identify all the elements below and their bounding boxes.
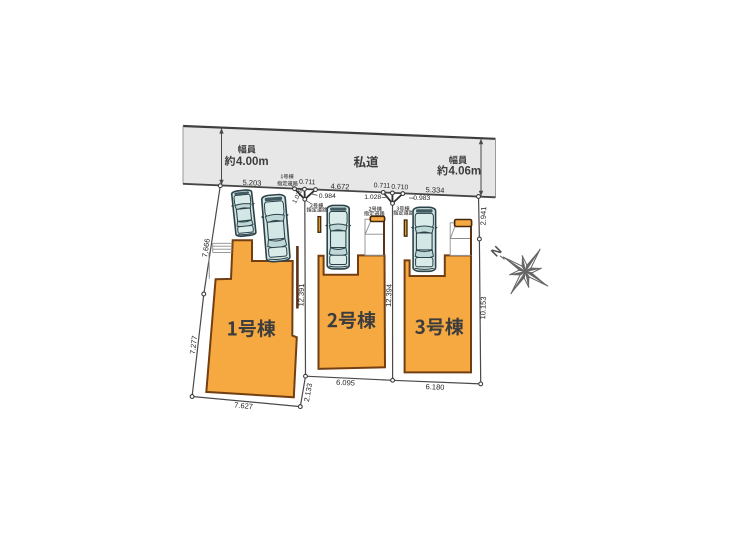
svg-text:4.06m: 4.06m [449, 166, 482, 178]
svg-text:4.00m: 4.00m [236, 156, 269, 168]
svg-text:0.711: 0.711 [374, 182, 391, 190]
svg-text:0.983: 0.983 [413, 195, 430, 202]
svg-text:0.711: 0.711 [299, 179, 316, 187]
svg-text:2.941: 2.941 [479, 206, 489, 225]
svg-text:0.710: 0.710 [391, 184, 408, 192]
svg-text:4.672: 4.672 [330, 182, 349, 192]
svg-text:7.627: 7.627 [234, 400, 254, 411]
svg-text:5.334: 5.334 [425, 185, 444, 195]
svg-text:10.153: 10.153 [478, 296, 488, 319]
svg-text:1.028: 1.028 [364, 194, 381, 201]
svg-text:6.095: 6.095 [336, 378, 355, 388]
svg-text:0.984: 0.984 [319, 193, 336, 200]
svg-text:12.391: 12.391 [296, 283, 306, 306]
svg-text:5.203: 5.203 [242, 178, 261, 188]
svg-text:6.180: 6.180 [425, 382, 444, 392]
svg-text:12.394: 12.394 [384, 284, 394, 307]
